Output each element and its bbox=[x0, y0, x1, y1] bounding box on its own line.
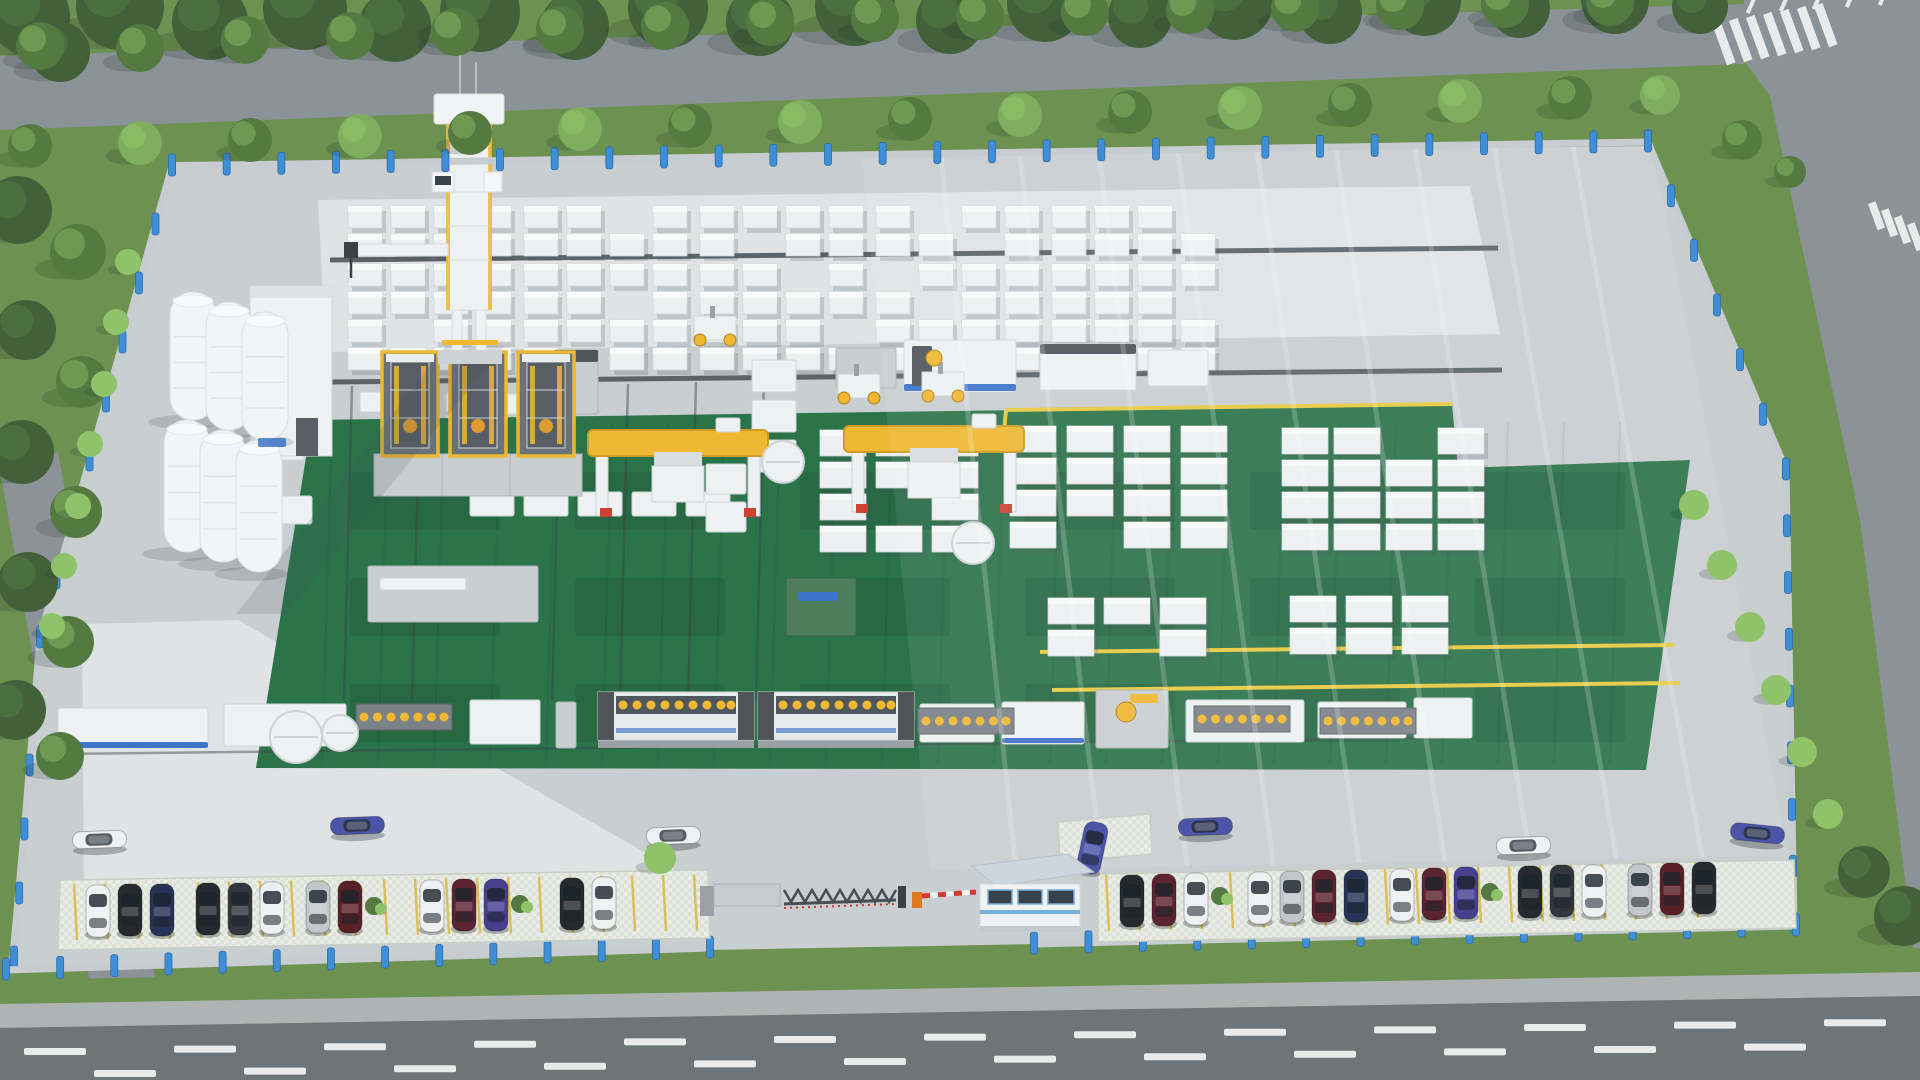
fence-post bbox=[1153, 138, 1160, 160]
block-top bbox=[567, 206, 601, 212]
lane-dash bbox=[1074, 1031, 1136, 1038]
block-top bbox=[653, 320, 687, 326]
tree-highlight bbox=[1, 305, 34, 338]
guard-house-base bbox=[980, 926, 1080, 932]
fence-post bbox=[165, 953, 172, 975]
parked-car bbox=[591, 877, 617, 932]
block-top bbox=[786, 348, 820, 354]
parked-car bbox=[227, 883, 253, 938]
parked-car bbox=[85, 885, 111, 940]
parked-car bbox=[1517, 866, 1543, 921]
cutter-machine bbox=[758, 692, 914, 748]
tree-highlight bbox=[1789, 739, 1806, 756]
parked-car bbox=[1549, 865, 1575, 920]
fence-post bbox=[770, 144, 777, 166]
tree-highlight bbox=[645, 6, 671, 32]
tree-highlight bbox=[41, 615, 55, 629]
rollertable-machine bbox=[356, 704, 452, 730]
parked-car bbox=[1311, 870, 1337, 925]
fence-post bbox=[707, 936, 714, 958]
fence-post bbox=[327, 948, 334, 970]
fence-post bbox=[989, 141, 996, 163]
machine-box bbox=[278, 496, 312, 524]
fence-post bbox=[436, 944, 443, 966]
fence-post bbox=[1317, 135, 1324, 157]
block-top bbox=[524, 320, 558, 326]
fence-post bbox=[152, 213, 159, 235]
cutter-machine bbox=[598, 692, 754, 748]
lane-dash bbox=[1144, 1053, 1206, 1060]
parked-car bbox=[1151, 874, 1177, 929]
parked-car bbox=[149, 884, 175, 939]
block-top bbox=[700, 206, 734, 212]
fence-post bbox=[1785, 572, 1792, 594]
silo-top bbox=[245, 315, 285, 327]
block-top bbox=[524, 292, 558, 298]
crane-boom bbox=[356, 244, 448, 256]
tree-highlight bbox=[1681, 492, 1698, 509]
gate-end-post bbox=[898, 886, 906, 908]
tree-highlight bbox=[1879, 891, 1912, 924]
guard-house-window bbox=[1018, 890, 1042, 904]
block-top bbox=[567, 234, 601, 240]
lane-dash bbox=[994, 1056, 1056, 1063]
fence-post bbox=[1714, 294, 1721, 316]
lane-dash bbox=[94, 1070, 156, 1077]
crane-cab bbox=[484, 172, 502, 192]
block-top bbox=[348, 264, 382, 270]
parked-car bbox=[419, 880, 445, 935]
block-top bbox=[567, 292, 601, 298]
block-top bbox=[829, 264, 863, 270]
factory-aerial-render: Aerial 3D rendering of an AAC block plan… bbox=[0, 0, 1920, 1080]
silo-top bbox=[203, 433, 243, 445]
car bbox=[1496, 836, 1551, 862]
crane-leg bbox=[476, 310, 486, 354]
block-top bbox=[743, 264, 777, 270]
tree-highlight bbox=[11, 127, 35, 151]
tree-highlight bbox=[1001, 96, 1025, 120]
machine-box bbox=[706, 464, 746, 494]
block-top bbox=[653, 292, 687, 298]
block-top bbox=[653, 234, 687, 240]
crane-hook-block bbox=[344, 242, 358, 258]
tree-highlight bbox=[750, 2, 776, 28]
tree-highlight bbox=[1763, 677, 1780, 694]
tree-highlight bbox=[1441, 82, 1465, 106]
block-top bbox=[786, 206, 820, 212]
block-top bbox=[348, 206, 382, 212]
parked-car bbox=[483, 879, 509, 934]
machine-box bbox=[380, 578, 466, 590]
silo-top bbox=[167, 423, 207, 435]
block-top bbox=[653, 206, 687, 212]
tree-highlight bbox=[1815, 801, 1832, 818]
block-top bbox=[829, 234, 863, 240]
lane-dash bbox=[1374, 1026, 1436, 1033]
car bbox=[330, 816, 385, 842]
parked-car bbox=[1627, 864, 1653, 919]
block-top bbox=[348, 320, 382, 326]
block-top bbox=[786, 234, 820, 240]
car bbox=[1178, 817, 1233, 843]
guard-house bbox=[972, 854, 1094, 932]
fence-post bbox=[169, 154, 176, 176]
fence-post bbox=[1085, 931, 1092, 953]
block-top bbox=[391, 264, 425, 270]
tree-highlight bbox=[120, 28, 146, 54]
gate-sliding-panel bbox=[714, 884, 780, 906]
crane-base bbox=[438, 350, 502, 364]
fence-post bbox=[1668, 185, 1675, 207]
tree-highlight bbox=[231, 121, 255, 145]
fence-post bbox=[1645, 130, 1652, 152]
block-top bbox=[567, 264, 601, 270]
tree-highlight bbox=[20, 26, 46, 52]
fence-post bbox=[598, 939, 605, 961]
parked-car bbox=[259, 882, 285, 937]
machine-box bbox=[786, 578, 856, 636]
tree-highlight bbox=[1221, 89, 1245, 113]
tree-highlight bbox=[3, 557, 36, 590]
ghost-building-slab bbox=[862, 144, 1788, 870]
fence-post bbox=[1043, 140, 1050, 162]
fence-post bbox=[21, 818, 28, 840]
block-top bbox=[610, 264, 644, 270]
silo-building-roof bbox=[250, 286, 332, 298]
fence-post bbox=[606, 147, 613, 169]
tree-highlight bbox=[1111, 93, 1135, 117]
block-top bbox=[391, 206, 425, 212]
block-top bbox=[434, 320, 468, 326]
lane-dash bbox=[1444, 1048, 1506, 1055]
fence-post bbox=[57, 956, 64, 978]
parked-car bbox=[1389, 869, 1415, 924]
tree-highlight bbox=[105, 311, 119, 325]
scene: Aerial 3D rendering of an AAC block plan… bbox=[0, 0, 1920, 1080]
lane-dash bbox=[624, 1038, 686, 1045]
fence-post bbox=[273, 950, 280, 972]
block-top bbox=[653, 348, 687, 354]
lane-dash bbox=[1224, 1029, 1286, 1036]
fence-post bbox=[278, 152, 285, 174]
tree-highlight bbox=[121, 124, 145, 148]
lane-dash bbox=[174, 1046, 236, 1053]
fence-post bbox=[1371, 134, 1378, 156]
block-top bbox=[829, 292, 863, 298]
lane-dash bbox=[474, 1041, 536, 1048]
tree-highlight bbox=[1709, 552, 1726, 569]
ghost-building bbox=[862, 144, 1788, 870]
tree-highlight bbox=[1776, 158, 1794, 176]
silo-tank bbox=[236, 440, 282, 572]
parked-car bbox=[1691, 862, 1717, 917]
block-top bbox=[743, 206, 777, 212]
tree-highlight bbox=[1643, 78, 1665, 100]
fence-post bbox=[1098, 139, 1105, 161]
tree-highlight bbox=[93, 373, 107, 387]
gate-pillar bbox=[700, 886, 714, 916]
machine-box bbox=[470, 700, 540, 744]
car bbox=[72, 830, 127, 856]
block-top bbox=[567, 320, 601, 326]
parked-car bbox=[1247, 872, 1273, 927]
fence-post bbox=[497, 149, 504, 171]
block-top bbox=[786, 292, 820, 298]
guard-house-trim bbox=[980, 910, 1080, 914]
lane-dash bbox=[774, 1036, 836, 1043]
fence-post bbox=[136, 272, 143, 294]
fence-post bbox=[111, 955, 118, 977]
block-top bbox=[820, 526, 866, 532]
parked-car bbox=[305, 881, 331, 936]
crane-leg bbox=[452, 310, 462, 354]
crane-cab-window bbox=[435, 176, 451, 185]
fence-post bbox=[11, 946, 18, 968]
machine-box bbox=[368, 566, 538, 622]
fence-post bbox=[490, 943, 497, 965]
fence-post bbox=[1784, 515, 1791, 537]
tree-highlight bbox=[341, 117, 365, 141]
block-top bbox=[348, 292, 382, 298]
tilt-machine bbox=[510, 352, 582, 496]
block-top bbox=[391, 292, 425, 298]
lane-dash bbox=[1744, 1044, 1806, 1051]
machine-box bbox=[58, 708, 208, 746]
fence-post bbox=[1789, 799, 1796, 821]
parked-car bbox=[559, 878, 585, 933]
block-top bbox=[610, 234, 644, 240]
lane-dash bbox=[394, 1065, 456, 1072]
machine-box bbox=[798, 592, 838, 601]
tree-highlight bbox=[79, 433, 93, 447]
fence-post bbox=[879, 142, 886, 164]
tree-highlight bbox=[561, 110, 585, 134]
tree-highlight bbox=[781, 103, 805, 127]
tree-highlight bbox=[40, 736, 66, 762]
fence-post bbox=[1535, 132, 1542, 154]
tree-highlight bbox=[225, 20, 251, 46]
lane-dash bbox=[244, 1068, 306, 1075]
guard-house-window bbox=[1048, 890, 1074, 904]
lane-dash bbox=[1824, 1019, 1886, 1026]
silo-tank bbox=[242, 312, 288, 440]
tree-highlight bbox=[1737, 614, 1754, 631]
fence-post bbox=[1426, 134, 1433, 156]
fence-post bbox=[1262, 136, 1269, 158]
parked-car bbox=[1183, 873, 1209, 928]
fence-post bbox=[1590, 131, 1597, 153]
brand-mark bbox=[258, 438, 286, 447]
lane-dash bbox=[1594, 1046, 1656, 1053]
block-top bbox=[743, 292, 777, 298]
parked-car bbox=[1343, 870, 1369, 925]
parked-car bbox=[1119, 875, 1145, 930]
guard-house-window bbox=[988, 890, 1012, 904]
tree-highlight bbox=[60, 360, 89, 389]
machine-box bbox=[752, 400, 796, 432]
fence-post bbox=[1691, 239, 1698, 261]
block-top bbox=[700, 264, 734, 270]
machine-box bbox=[752, 360, 796, 392]
block-top bbox=[786, 320, 820, 326]
machine-box bbox=[706, 502, 746, 532]
fence-post bbox=[825, 143, 832, 165]
parked-car bbox=[195, 883, 221, 938]
tree-highlight bbox=[53, 555, 67, 569]
tree-highlight bbox=[1725, 123, 1747, 145]
tree-highlight bbox=[67, 495, 81, 509]
block-top bbox=[700, 234, 734, 240]
tree-highlight bbox=[1842, 850, 1871, 879]
block-top bbox=[700, 292, 734, 298]
lane-dash bbox=[324, 1043, 386, 1050]
tree-highlight bbox=[891, 100, 915, 124]
block-top bbox=[829, 206, 863, 212]
fence-post bbox=[652, 938, 659, 960]
tree-highlight bbox=[54, 228, 85, 259]
silo-building-door bbox=[296, 418, 318, 456]
block-top bbox=[348, 234, 382, 240]
fence-post bbox=[1783, 458, 1790, 480]
crane-rail-trim bbox=[442, 340, 498, 345]
fence-post bbox=[3, 958, 10, 980]
tree-highlight bbox=[117, 251, 131, 265]
block-top bbox=[391, 234, 425, 240]
barrier-pivot bbox=[912, 892, 922, 908]
crane-mast-trim bbox=[488, 124, 492, 310]
fence-post bbox=[1760, 403, 1767, 425]
block-top bbox=[743, 348, 777, 354]
parked-car bbox=[1279, 871, 1305, 926]
fence-post bbox=[551, 148, 558, 170]
tree-highlight bbox=[671, 107, 695, 131]
parked-car bbox=[337, 881, 363, 936]
block-top bbox=[653, 264, 687, 270]
lane-dash bbox=[1524, 1024, 1586, 1031]
fence-post bbox=[16, 882, 23, 904]
fence-post bbox=[661, 146, 668, 168]
tree-highlight bbox=[451, 114, 475, 138]
fence-post bbox=[715, 145, 722, 167]
lane-dash bbox=[694, 1060, 756, 1067]
tree-highlight bbox=[1551, 79, 1575, 103]
lane-dash bbox=[844, 1058, 906, 1065]
fence-post bbox=[934, 142, 941, 164]
parked-car bbox=[117, 884, 143, 939]
tree-highlight bbox=[1331, 86, 1355, 110]
parked-car bbox=[1581, 865, 1607, 920]
parked-car bbox=[451, 879, 477, 934]
block-top bbox=[700, 348, 734, 354]
fence-post bbox=[219, 951, 226, 973]
fence-post bbox=[544, 941, 551, 963]
lane-dash bbox=[544, 1063, 606, 1070]
lane-dash bbox=[1294, 1051, 1356, 1058]
machine-box bbox=[556, 702, 576, 748]
lane-dash bbox=[24, 1048, 86, 1055]
parked-car bbox=[1421, 868, 1447, 923]
floor-bay bbox=[575, 578, 725, 636]
block-top bbox=[348, 348, 382, 354]
tree-highlight bbox=[540, 10, 566, 36]
block-top bbox=[524, 234, 558, 240]
fence-post bbox=[1481, 133, 1488, 155]
silo-top bbox=[173, 295, 213, 307]
compound bbox=[8, 54, 1796, 972]
silo-top bbox=[209, 305, 249, 317]
fence-post bbox=[387, 150, 394, 172]
parked-car bbox=[1659, 863, 1685, 918]
lane-dash bbox=[924, 1034, 986, 1041]
tree-highlight bbox=[435, 12, 461, 38]
fence-post bbox=[382, 946, 389, 968]
tree-highlight bbox=[330, 16, 356, 42]
fence-post bbox=[1737, 349, 1744, 371]
lane-dash bbox=[1674, 1022, 1736, 1029]
parked-car bbox=[1453, 867, 1479, 922]
block-top bbox=[610, 348, 644, 354]
fence-post bbox=[1031, 932, 1038, 954]
fence-post bbox=[1207, 137, 1214, 159]
fence-post bbox=[1786, 628, 1793, 650]
block-top bbox=[524, 264, 558, 270]
block-top bbox=[743, 320, 777, 326]
block-top bbox=[610, 320, 644, 326]
block-top bbox=[524, 206, 558, 212]
tree-highlight bbox=[646, 844, 664, 862]
